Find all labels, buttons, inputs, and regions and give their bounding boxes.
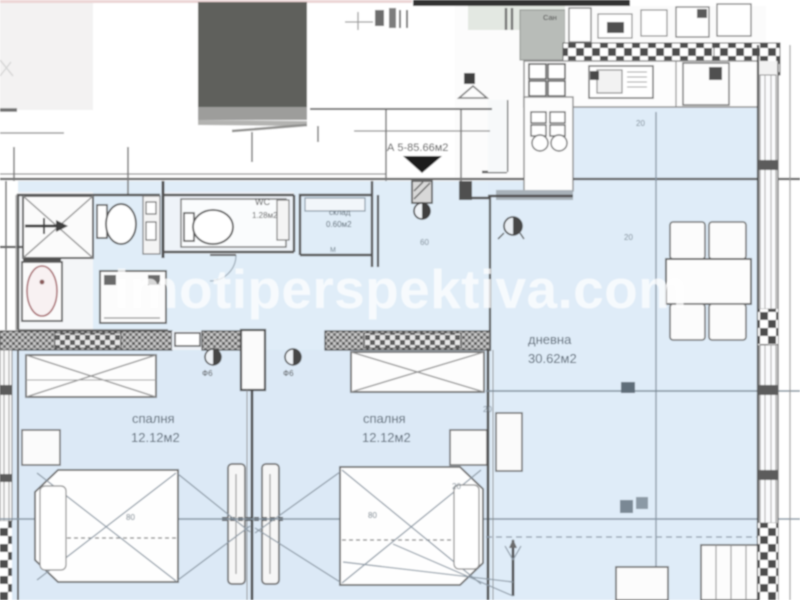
- svg-text:дневна: дневна: [528, 332, 572, 347]
- svg-text:20: 20: [483, 405, 492, 414]
- svg-text:склад: склад: [329, 208, 351, 217]
- svg-text:А 5-85.66м2: А 5-85.66м2: [387, 142, 448, 154]
- svg-text:спалня: спалня: [363, 411, 406, 426]
- svg-text:Ф6: Ф6: [283, 369, 294, 378]
- svg-text:60: 60: [420, 238, 429, 247]
- svg-text:80: 80: [126, 513, 135, 522]
- svg-text:WC: WC: [255, 197, 270, 207]
- svg-text:imotiperspektiva.com: imotiperspektiva.com: [114, 258, 687, 320]
- svg-text:спалня: спалня: [132, 411, 175, 426]
- svg-text:20: 20: [636, 119, 645, 128]
- svg-text:М: М: [330, 247, 336, 254]
- svg-text:20: 20: [452, 482, 461, 491]
- svg-text:Ф6: Ф6: [202, 369, 213, 378]
- svg-text:12.12м2: 12.12м2: [131, 430, 180, 445]
- svg-text:12.12м2: 12.12м2: [362, 430, 411, 445]
- svg-text:Сан: Сан: [543, 13, 557, 22]
- svg-text:1.28м2: 1.28м2: [252, 211, 278, 220]
- svg-text:20: 20: [624, 233, 633, 242]
- svg-text:80: 80: [368, 511, 377, 520]
- svg-text:30.62м2: 30.62м2: [528, 351, 577, 366]
- svg-text:0.60м2: 0.60м2: [326, 220, 352, 229]
